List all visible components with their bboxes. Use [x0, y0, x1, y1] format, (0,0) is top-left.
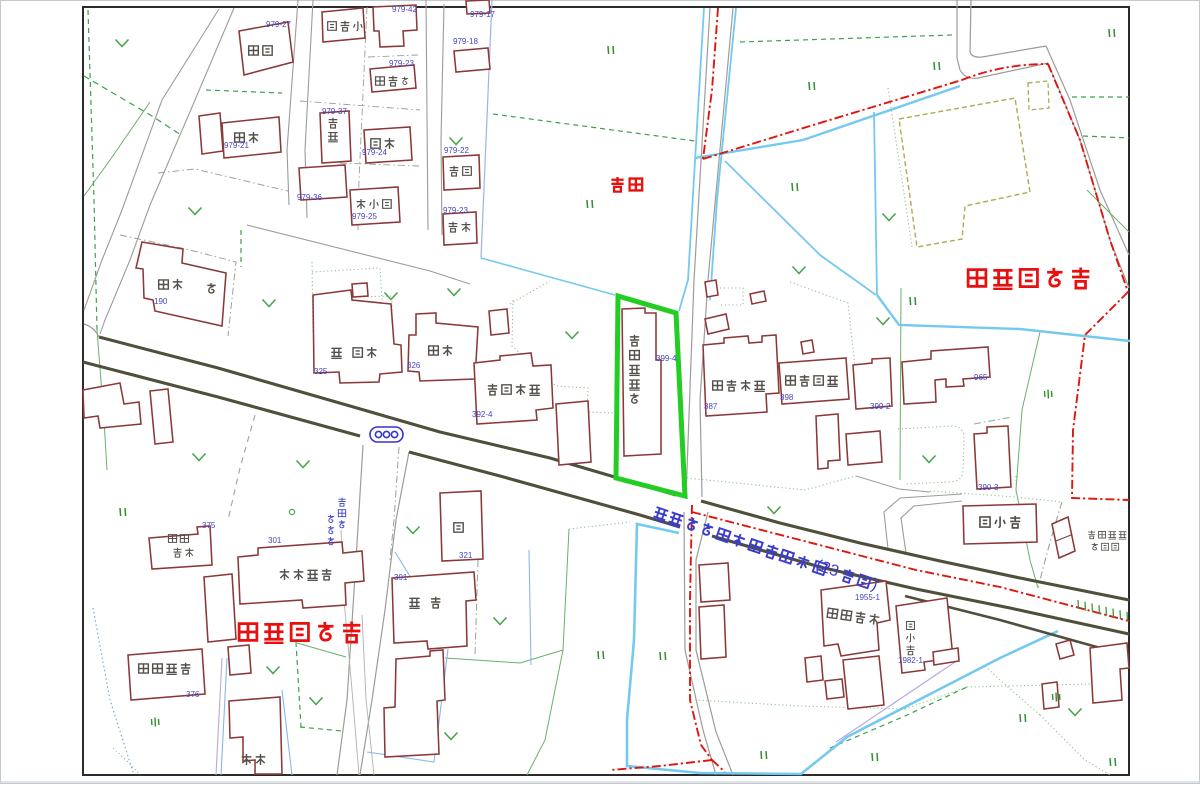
- svg-text:190: 190: [154, 297, 168, 306]
- svg-text:326: 326: [407, 361, 421, 370]
- svg-text:979-23: 979-23: [389, 59, 414, 68]
- svg-text:979-18: 979-18: [453, 37, 478, 46]
- svg-text:979-27: 979-27: [266, 20, 291, 29]
- svg-text:301: 301: [268, 536, 282, 545]
- svg-text:979-24: 979-24: [362, 148, 387, 157]
- svg-text:965: 965: [974, 373, 988, 382]
- svg-text:391: 391: [394, 573, 408, 582]
- svg-text:979-37: 979-37: [322, 107, 347, 116]
- svg-text:392-4: 392-4: [472, 410, 493, 419]
- svg-text:399-4: 399-4: [656, 354, 677, 363]
- svg-text:398: 398: [780, 393, 794, 402]
- svg-text:321: 321: [459, 551, 473, 560]
- svg-text:1982-1: 1982-1: [898, 656, 923, 665]
- svg-text:979-42: 979-42: [392, 5, 417, 14]
- svg-text:979-36: 979-36: [297, 193, 322, 202]
- svg-text:390-3: 390-3: [978, 483, 999, 492]
- svg-text:375: 375: [202, 521, 216, 530]
- svg-text:979-23: 979-23: [443, 206, 468, 215]
- svg-text:399-2: 399-2: [870, 402, 891, 411]
- svg-text:979-25: 979-25: [352, 212, 377, 221]
- svg-text:979-22: 979-22: [444, 146, 469, 155]
- svg-text:979-17: 979-17: [470, 10, 495, 19]
- svg-text:376: 376: [186, 690, 200, 699]
- svg-text:1955-1: 1955-1: [855, 593, 880, 602]
- svg-text:325: 325: [314, 367, 328, 376]
- svg-text:387: 387: [704, 402, 718, 411]
- svg-text:979-21: 979-21: [224, 141, 249, 150]
